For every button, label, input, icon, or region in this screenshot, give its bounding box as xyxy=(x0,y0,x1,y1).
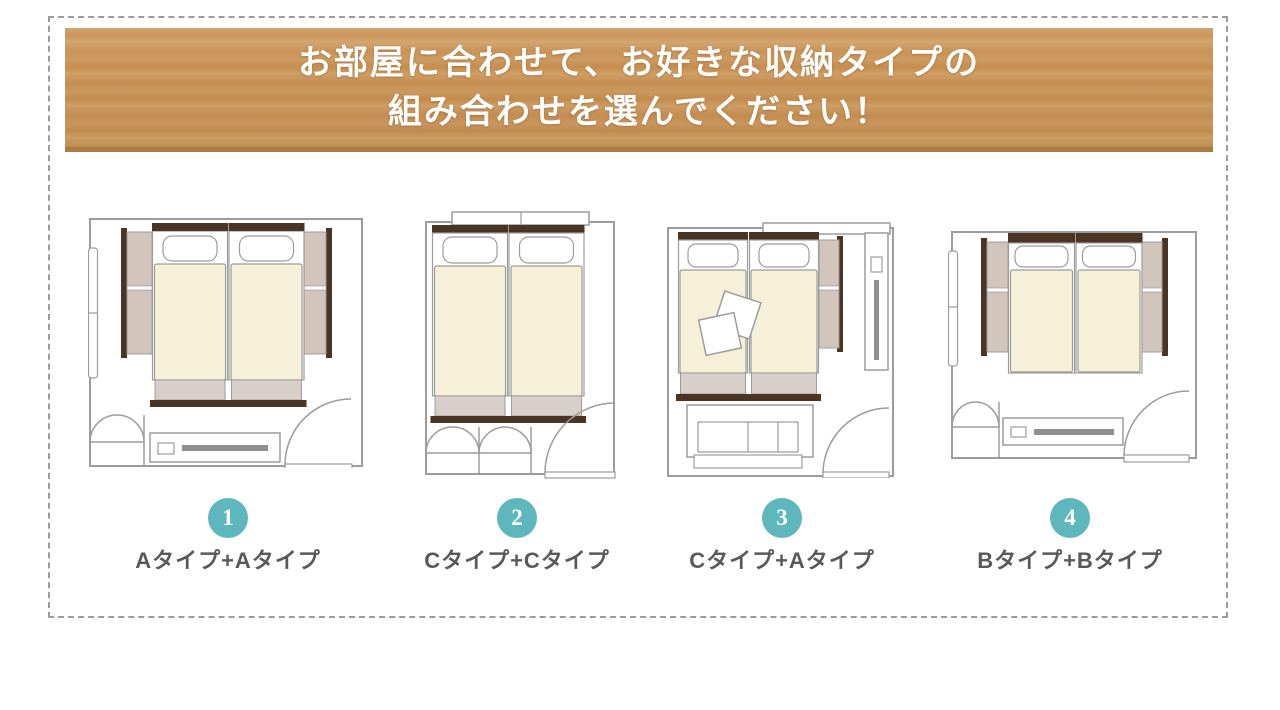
wall-cabinet xyxy=(865,233,888,370)
plan-caption-4: 4 Bタイプ+Bタイプ xyxy=(940,498,1200,575)
side-storage-right xyxy=(819,236,843,352)
side-storage-right xyxy=(301,228,332,358)
plan-caption-2: 2 Cタイプ+Cタイプ xyxy=(387,498,647,575)
plan-number-badge: 1 xyxy=(208,498,248,538)
header-title: お部屋に合わせて、お好きな収納タイプの 組み合わせを選んでください！ xyxy=(65,28,1213,137)
floorplan-4 xyxy=(948,226,1197,466)
header-banner: お部屋に合わせて、お好きな収納タイプの 組み合わせを選んでください！ xyxy=(65,28,1213,152)
headboard-shelf xyxy=(452,212,589,225)
side-storage-left xyxy=(981,238,1008,356)
header-title-line2: 組み合わせを選んでください！ xyxy=(65,88,1213,137)
floorplan-2 xyxy=(424,210,617,480)
header-title-line1: お部屋に合わせて、お好きな収納タイプの xyxy=(65,39,1213,88)
plan-label: Cタイプ+Cタイプ xyxy=(424,543,610,575)
floorplan-4-drawing xyxy=(948,226,1197,466)
plan-number-badge: 3 xyxy=(762,498,802,538)
side-storage-right xyxy=(1141,238,1168,356)
floorplan-3 xyxy=(664,222,896,478)
page: お部屋に合わせて、お好きな収納タイプの 組み合わせを選んでください！ xyxy=(0,0,1280,710)
sofa xyxy=(687,405,813,468)
plan-number-badge: 4 xyxy=(1050,498,1090,538)
plan-number-badge: 2 xyxy=(497,498,537,538)
side-storage-left xyxy=(121,228,152,358)
plan-label: Bタイプ+Bタイプ xyxy=(977,543,1163,575)
plan-caption-3: 3 Cタイプ+Aタイプ xyxy=(652,498,912,575)
plan-caption-1: 1 Aタイプ+Aタイプ xyxy=(98,498,358,575)
window xyxy=(89,248,98,378)
floorplan-2-drawing xyxy=(424,210,617,480)
tv-stand xyxy=(1003,418,1123,445)
plan-label: Cタイプ+Aタイプ xyxy=(689,543,875,575)
floorplan-3-drawing xyxy=(664,222,896,478)
floorplan-1 xyxy=(88,216,365,468)
plan-label: Aタイプ+Aタイプ xyxy=(135,543,321,575)
tv-stand xyxy=(150,433,280,462)
floorplan-1-drawing xyxy=(88,216,365,468)
window xyxy=(949,251,958,366)
